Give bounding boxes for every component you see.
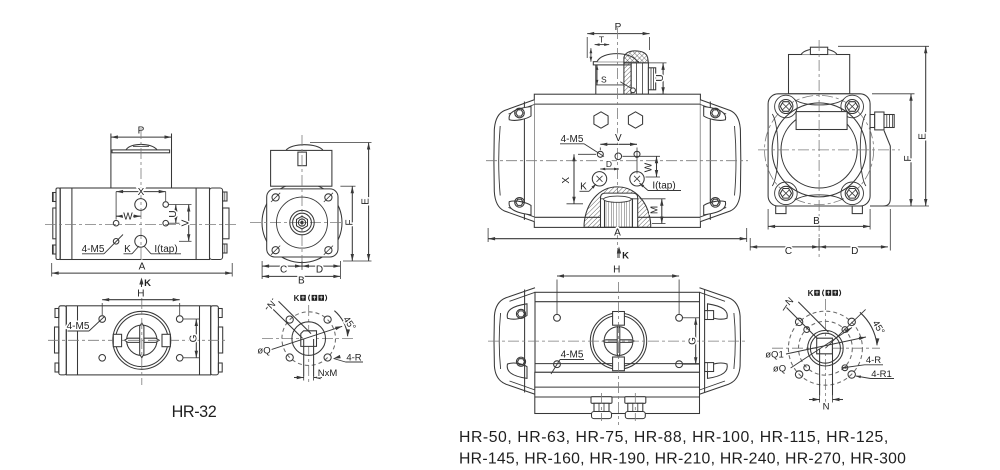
svg-text:B: B	[298, 275, 305, 286]
svg-text:M: M	[649, 206, 660, 214]
svg-text:I(tap): I(tap)	[652, 181, 675, 192]
svg-text:A: A	[139, 262, 146, 273]
svg-text:4-M5: 4-M5	[561, 350, 584, 361]
svg-text:HR-50, HR-63, HR-75, HR-88, HR: HR-50, HR-63, HR-75, HR-88, HR-100, HR-1…	[459, 429, 889, 446]
svg-text:A: A	[614, 227, 621, 238]
svg-text:X: X	[561, 177, 572, 184]
svg-text:HR-32: HR-32	[172, 403, 217, 421]
svg-text:P: P	[615, 22, 622, 33]
svg-text:D: D	[316, 264, 323, 275]
svg-text:øQ: øQ	[773, 364, 786, 375]
svg-text:X: X	[138, 187, 145, 198]
svg-text:G: G	[688, 337, 699, 345]
svg-text:U: U	[655, 74, 666, 81]
svg-text:U: U	[168, 210, 179, 217]
svg-text:4-M5: 4-M5	[67, 321, 90, 332]
svg-text:H: H	[613, 265, 620, 276]
svg-text:K: K	[294, 294, 300, 303]
svg-text:øQ: øQ	[257, 346, 270, 357]
svg-text:NxM: NxM	[318, 368, 338, 379]
svg-text:F: F	[903, 155, 914, 161]
svg-text:G: G	[188, 334, 199, 342]
svg-text:W: W	[644, 162, 655, 172]
svg-text:F: F	[344, 220, 355, 226]
svg-text:N: N	[823, 402, 830, 413]
svg-text:B: B	[813, 216, 820, 227]
svg-text:C: C	[280, 264, 287, 275]
svg-text:V: V	[181, 219, 192, 226]
svg-text:K: K	[622, 251, 629, 262]
svg-text:K: K	[144, 278, 151, 289]
svg-text:E: E	[918, 133, 929, 140]
svg-text:S: S	[601, 75, 607, 85]
svg-text:øQ1: øQ1	[765, 350, 783, 361]
svg-text:H: H	[137, 288, 144, 299]
svg-text:K: K	[808, 289, 814, 298]
svg-text:D: D	[606, 159, 612, 169]
svg-text:HR-145, HR-160, HR-190, HR-210: HR-145, HR-160, HR-190, HR-210, HR-240, …	[459, 451, 906, 468]
svg-text:V: V	[615, 133, 622, 144]
svg-text:T: T	[599, 34, 604, 44]
svg-text:W: W	[123, 212, 133, 223]
svg-text:C: C	[785, 246, 792, 257]
svg-text:D: D	[851, 246, 858, 257]
svg-text:E: E	[361, 198, 372, 205]
